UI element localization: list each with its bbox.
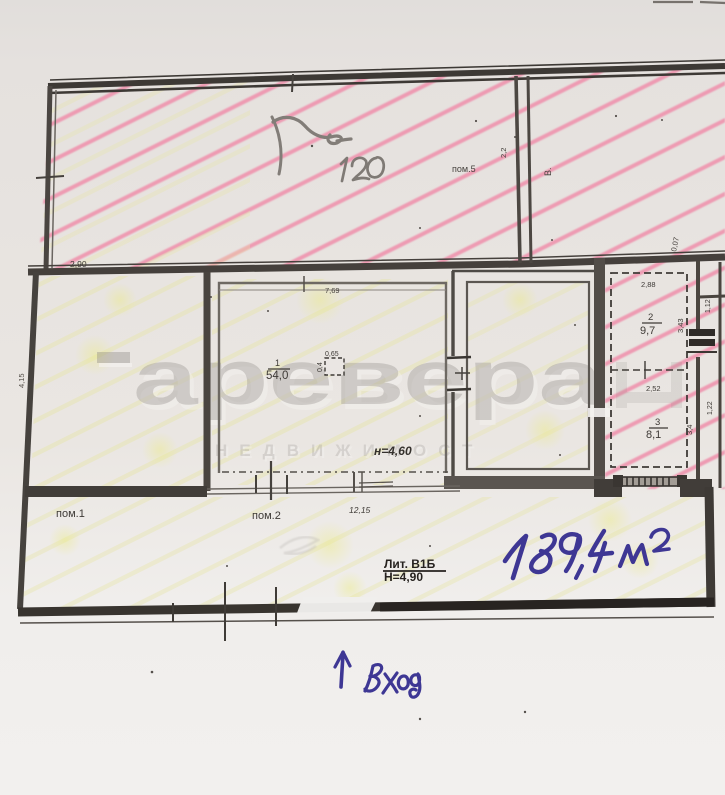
- svg-text:2: 2: [648, 312, 653, 323]
- svg-text:пом.1: пом.1: [56, 508, 85, 520]
- svg-text:0,65: 0,65: [325, 351, 339, 358]
- svg-text:НЕДВИЖИМОСТ: НЕДВИЖИМОСТ: [215, 441, 484, 460]
- svg-text:3: 3: [655, 417, 660, 428]
- svg-text:7,69: 7,69: [325, 286, 340, 295]
- svg-text:Лит. В1Б: Лит. В1Б: [384, 557, 436, 571]
- svg-text:2,88: 2,88: [641, 280, 656, 289]
- svg-text:1: 1: [275, 358, 280, 368]
- svg-text:12,15: 12,15: [349, 505, 371, 515]
- svg-text:8,1: 8,1: [646, 429, 661, 441]
- svg-text:Н=4,90: Н=4,90: [384, 570, 423, 584]
- svg-text:3,4: 3,4: [685, 425, 694, 435]
- svg-text:2,52: 2,52: [646, 384, 661, 393]
- svg-text:2,90: 2,90: [70, 259, 87, 269]
- svg-text:2,2: 2,2: [499, 148, 508, 158]
- svg-text:В.: В.: [543, 167, 553, 176]
- svg-text:9,7: 9,7: [640, 325, 655, 337]
- svg-text:54,0: 54,0: [266, 370, 288, 382]
- svg-text:4,15: 4,15: [17, 373, 26, 388]
- svg-text:0,4: 0,4: [317, 362, 324, 372]
- svg-text:пом.2: пом.2: [252, 510, 281, 522]
- svg-text:н=4,60: н=4,60: [374, 444, 412, 458]
- svg-text:пом.5: пом.5: [452, 164, 476, 174]
- svg-text:3,43: 3,43: [676, 318, 685, 333]
- svg-text:1,22: 1,22: [707, 401, 714, 415]
- svg-text:1,12: 1,12: [705, 299, 712, 313]
